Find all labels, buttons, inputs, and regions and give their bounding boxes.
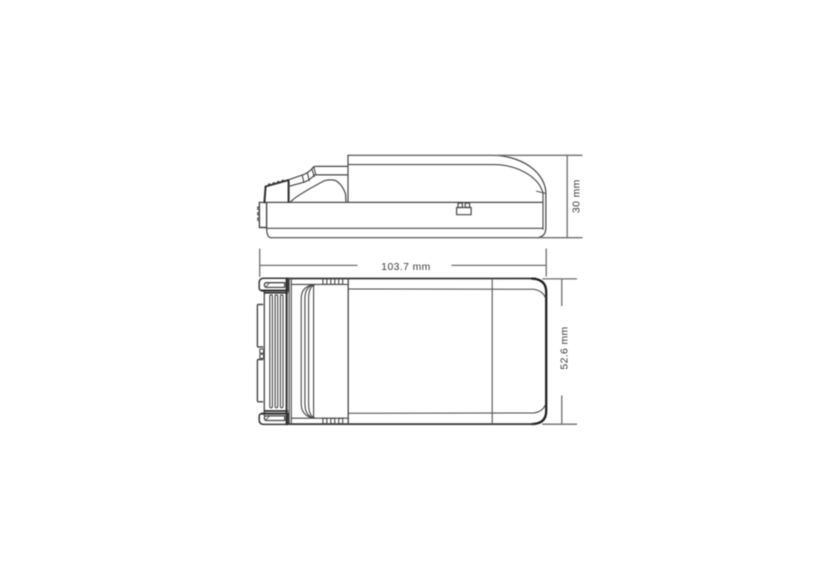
svg-text:103.7 mm: 103.7 mm bbox=[381, 262, 430, 273]
svg-text:30 mm: 30 mm bbox=[572, 179, 583, 213]
svg-text:52.6 mm: 52.6 mm bbox=[559, 326, 570, 369]
